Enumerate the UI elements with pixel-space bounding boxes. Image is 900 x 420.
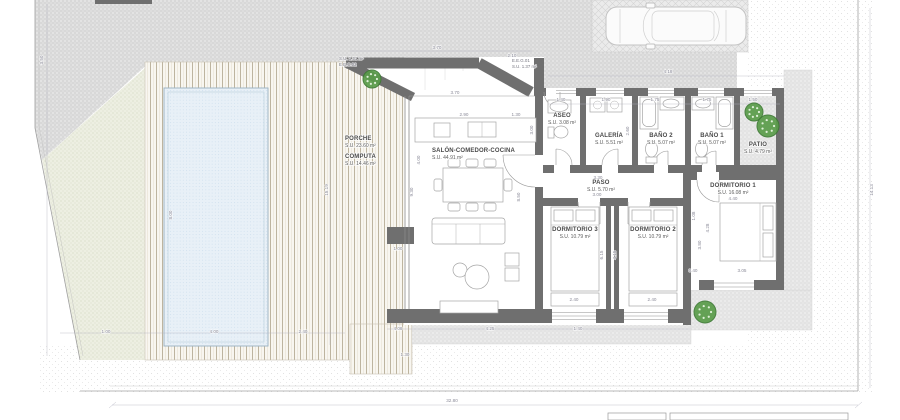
dimension-label: 1.75: [703, 97, 712, 102]
dimension-label: 3.70: [451, 90, 460, 95]
room-area-dormitorio3: S.U. 10.79 m²: [560, 234, 591, 240]
side-table-1: [505, 253, 519, 266]
dimension-label: 4.00: [210, 329, 219, 334]
room-label-aseo: ASEO: [553, 113, 571, 119]
room-label-computa: COMPUTA: [345, 154, 376, 160]
room-area-aseo: S.U. 3.08 m²: [548, 120, 576, 126]
room-area-porche: S.U. 23.60 m²: [345, 143, 376, 149]
dimension-label: 1.30: [512, 112, 521, 117]
tree-icon: [757, 115, 779, 137]
side-table-2: [505, 268, 519, 281]
title-block-cell-1: [608, 413, 666, 420]
dimension-label: 1.40: [574, 326, 583, 331]
dimension-label: 32.80: [446, 398, 458, 403]
bed-dorm2: [629, 207, 677, 291]
dimension-label: 1.30: [401, 352, 410, 357]
dimension-label: 14.13: [869, 184, 874, 196]
dimension-label: 15.19: [324, 184, 329, 196]
wall-dorm3-dorm2-a: [606, 200, 611, 322]
room-label-dormitorio1: DORMITORIO 1: [710, 183, 756, 189]
wall-dorm2-east: [683, 173, 691, 325]
room-label-dormitorio3: DORMITORIO 3: [552, 227, 598, 233]
dimension-label: 3.05: [738, 268, 747, 273]
zone-path-bottom: [412, 323, 691, 344]
floor-plan-svg: PORCHES.U. 23.60 m²COMPUTAS.U. 14.46 m²S…: [0, 0, 900, 420]
room-label-patio: PATIO: [749, 142, 767, 148]
tree-icon: [694, 301, 716, 323]
dimension-label: 4.25: [486, 326, 495, 331]
zone-wood-deck-lower: [350, 324, 412, 374]
dimension-label: 2.60: [625, 126, 630, 135]
room-label-paso: PASO: [592, 180, 609, 186]
dimension-label: 4.40: [729, 196, 738, 201]
dimension-label: 8.00: [168, 210, 173, 219]
wall-aseo-galeria: [580, 96, 586, 173]
zone-side-strip-right: [784, 70, 812, 290]
swimming-pool: [164, 88, 268, 346]
room-area-patio: S.U. 4.79 m²: [744, 149, 772, 155]
dimension-label: 1.00: [394, 246, 403, 251]
dimension-label: 3.70: [433, 45, 442, 50]
dimension-label: 4.08: [394, 326, 403, 331]
dimension-label: 1.40: [557, 97, 566, 102]
dimension-label: 9.30: [409, 187, 414, 196]
dimension-label: 2.40: [299, 329, 308, 334]
dimension-label: 1.00: [102, 329, 111, 334]
room-label-bano1: BAÑO 1: [700, 132, 724, 139]
annotation-eeg01-code: E.E.G.01: [512, 58, 530, 63]
dimension-label: 1.50: [749, 97, 758, 102]
dimension-label: 1.08: [691, 211, 696, 220]
top-wall-fragment: [95, 0, 152, 4]
annotation-eeg01-area: S.U. 1.37 m²: [512, 64, 537, 69]
dimension-label: 8.50: [516, 192, 521, 201]
dimension-label: 4.15: [612, 250, 617, 259]
wall-galeria-bano2: [632, 96, 638, 173]
car-icon: [606, 3, 746, 49]
bed-dorm3: [551, 207, 599, 291]
wall-bano1-patio: [734, 96, 740, 173]
annotation-eec02-code: E.E.C.02: [339, 62, 357, 67]
room-label-bano2: BAÑO 2: [649, 132, 673, 139]
dimension-label: 3.50: [39, 55, 44, 64]
bed-dorm1: [720, 203, 776, 261]
room-area-dormitorio2: S.U. 10.79 m²: [638, 234, 669, 240]
dimension-label: 4.28: [705, 223, 710, 232]
room-area-computa: S.U. 14.46 m²: [345, 161, 376, 167]
sofa: [432, 218, 505, 244]
room-label-salon: SALÓN-COMEDOR-COCINA: [432, 146, 516, 154]
dimension-label: 1.75: [651, 97, 660, 102]
dimension-label: 3.30: [594, 175, 603, 180]
room-label-porche: PORCHE: [345, 136, 372, 142]
tv-bench: [440, 301, 498, 313]
wall-bano2-bano1: [685, 96, 691, 173]
door-gap-salon-paso: [535, 155, 543, 187]
room-label-dormitorio2: DORMITORIO 2: [630, 227, 676, 233]
floor-plan-page: PORCHES.U. 23.60 m²COMPUTAS.U. 14.46 m²S…: [0, 0, 900, 420]
wall-east: [776, 88, 784, 290]
dimension-label: 4.00: [416, 155, 421, 164]
room-area-salon: S.U. 44.91 m²: [432, 155, 463, 161]
dimension-label: 2.90: [460, 112, 469, 117]
room-area-bano1: S.U. 5.07 m²: [698, 140, 726, 146]
annotation-eec02-area: S.U. 1.31 m²: [339, 56, 364, 61]
wall-dorm3-dorm2-b: [614, 200, 619, 322]
coffee-table-large: [465, 265, 489, 289]
dimension-label: 2.40: [648, 297, 657, 302]
room-area-galeria: S.U. 5.51 m²: [595, 140, 623, 146]
dimension-label: 2.40: [570, 297, 579, 302]
tree-icon: [363, 70, 381, 88]
room-area-bano2: S.U. 5.07 m²: [647, 140, 675, 146]
dimension-label: 1.90: [602, 97, 611, 102]
room-label-galeria: GALERÍA: [595, 131, 624, 139]
dimension-label: 3.00: [529, 125, 534, 134]
dimension-label: 3.00: [593, 192, 602, 197]
dimension-label: 6.15: [599, 250, 604, 259]
pillar-porch: [387, 227, 414, 244]
title-block-cell-2: [670, 413, 848, 420]
dimension-label: 4.18: [664, 69, 673, 74]
kitchen-counter: [415, 118, 536, 142]
dimension-label: 0.40: [689, 268, 698, 273]
dimension-label: 3.80: [697, 240, 702, 249]
